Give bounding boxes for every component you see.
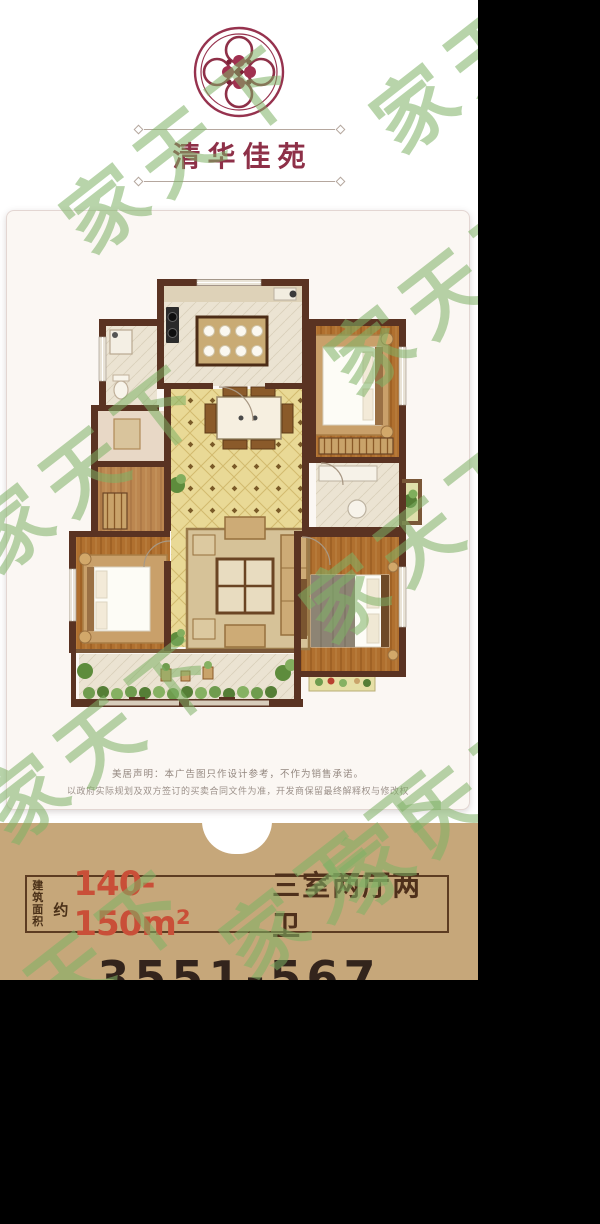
notch-cutout: [202, 823, 272, 854]
cabinet-icon: [114, 419, 140, 449]
pot-icon: [181, 671, 190, 681]
nightstand-icon: [79, 553, 91, 565]
floorplan-card: 美居声明：本广告图只作设计参考，不作为销售承诺。 以政府实际规划及双方签订的买卖…: [6, 210, 470, 810]
brand-name: 清华佳苑: [142, 130, 337, 181]
wardrobe-icon: [319, 438, 393, 454]
toilet-icon: [114, 381, 128, 399]
kitchen-table: [197, 317, 267, 365]
disclaimer-line-2: 以政府实际规划及双方签订的买卖合同文件为准，开发商保留最终解释权与修改权: [7, 784, 469, 797]
disclaimer-line-1: 美居声明：本广告图只作设计参考，不作为销售承诺。: [7, 766, 469, 780]
headboard: [375, 347, 383, 425]
nightstand-icon: [381, 333, 393, 345]
phone-number: 3551-567: [0, 951, 478, 980]
side-table-icon: [193, 619, 215, 639]
flyer-photo: 清华佳苑: [0, 0, 478, 980]
washer-icon: [348, 500, 366, 518]
vanity-icon: [319, 466, 377, 481]
headboard: [87, 567, 94, 631]
area-label: 建筑 面积: [27, 880, 48, 928]
armchair-icon: [225, 517, 265, 539]
tv-cabinet-icon: [301, 579, 307, 639]
brand-header: 清华佳苑: [0, 24, 478, 182]
layout-text: 三室两厅两卫: [272, 864, 447, 944]
dining-set: [205, 387, 293, 449]
armchair-icon: [225, 625, 265, 647]
nightstand-icon: [79, 631, 91, 643]
footer-strip: 建筑 面积 约 140-150m² 三室两厅两卫 3551-567: [0, 823, 478, 980]
approx-label: 约: [53, 899, 68, 920]
area-value: 140-150m²: [73, 864, 265, 944]
nightstand-icon: [388, 650, 398, 660]
wardrobe-icon: [103, 493, 127, 529]
bedroom-bottom-right-furniture: [301, 562, 398, 660]
nightstand-icon: [381, 426, 393, 438]
side-table-icon: [193, 535, 215, 555]
ornament-rule-top: [144, 129, 335, 130]
dining-table: [217, 397, 281, 439]
headboard: [381, 575, 389, 647]
nightstand-icon: [388, 562, 398, 572]
floorplan-graphic: [69, 279, 469, 729]
ornament-rule-bottom: [144, 181, 335, 182]
area-box: 建筑 面积 约 140-150m² 三室两厅两卫: [25, 875, 449, 933]
brand-medallion-icon: [191, 24, 287, 120]
disclaimer: 美居声明：本广告图只作设计参考，不作为销售承诺。 以政府实际规划及双方签订的买卖…: [7, 766, 469, 797]
